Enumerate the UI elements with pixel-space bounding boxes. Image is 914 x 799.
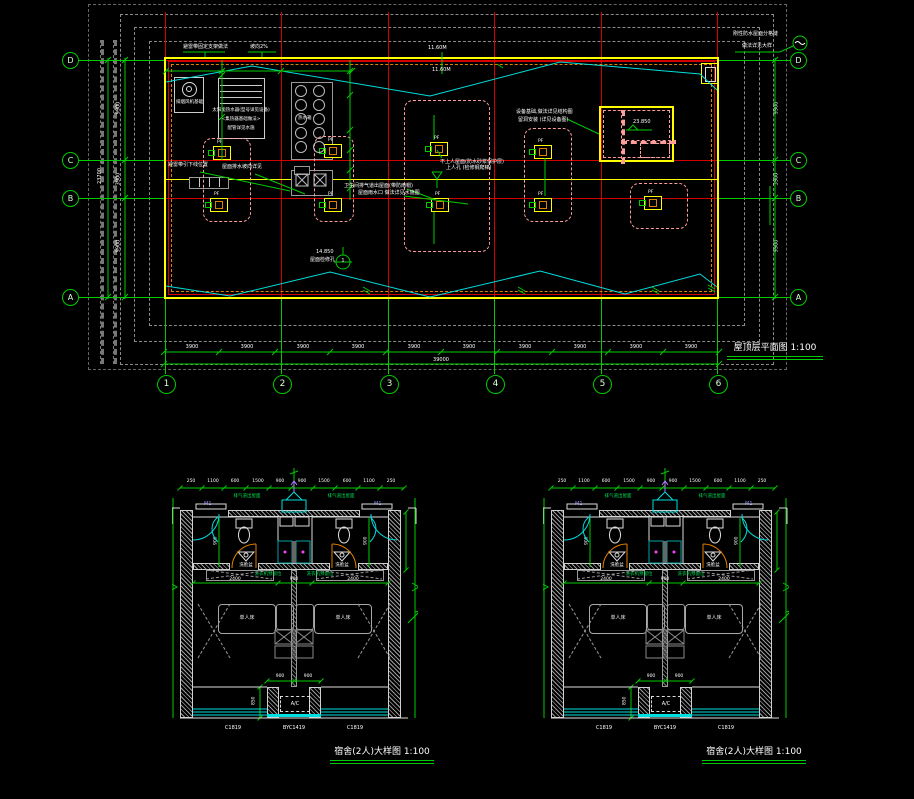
note-belt-support: 避雷带固定支架做法 [183, 44, 228, 50]
note-roof-2: 上人孔 (检修钢爬梯) [446, 165, 492, 171]
note-equip-2: 留洞安装 (详见设备图) [518, 117, 569, 123]
dorm-unit: 单人床 单人床 A/C M1 M1 排气道出屋面 排气道出屋面 洗脸盆 洗脸盆 … [543, 468, 789, 736]
note-joint-2: 做法详见大样 [742, 43, 772, 49]
unit-shower-stalls [278, 541, 310, 563]
dorm-unit-detail-left: 单人床 单人床 A/C M1 M1 排气道出屋面 排气道出屋面 洗脸盆 洗脸盆 … [172, 468, 418, 736]
belt-height-2: 11.60M [432, 67, 451, 73]
unit-walls-lines [172, 504, 416, 718]
note-slope: 坡向2% [250, 44, 268, 50]
unit-dims [172, 468, 418, 721]
note-drain-dir: 屋面排水坡向详见 [222, 164, 262, 170]
note-rain: 屋面雨水口 做法详见水施图 [358, 190, 420, 196]
detail-title-left: 宿舍(2人)大样图 1:100 [330, 744, 434, 764]
joint-detail-symbol [793, 36, 807, 50]
belt-height-1: 11.60M [428, 45, 447, 51]
unit-wardrobe-x [646, 630, 684, 658]
detail-circle-number: 1 [341, 258, 344, 264]
unit-dims [543, 468, 789, 721]
dimension-lines [105, 57, 778, 367]
note-equip-1: 设备基础,做法详见结构图 [516, 109, 573, 115]
unit-walls-lines [543, 504, 787, 718]
note-access-level: 14.850 [316, 249, 334, 255]
note-access: 屋面检修孔 [310, 257, 335, 263]
solar-tank-circles [296, 86, 327, 187]
dorm-unit-detail-right: 单人床 单人床 A/C M1 M1 排气道出屋面 排气道出屋面 洗脸盆 洗脸盆 … [543, 468, 789, 736]
unit-linework [543, 468, 789, 736]
unit-shower-stalls [649, 541, 681, 563]
lightning-belt [166, 62, 717, 297]
roof-plan-title: 屋顶层平面图 1:100 [727, 340, 823, 360]
note-joint-1: 刚性防水屋面分格缝 [733, 31, 778, 37]
detail-title-right: 宿舍(2人)大样图 1:100 [702, 744, 806, 764]
unit-wardrobe-x [275, 630, 313, 658]
note-downlead: 避雷带引下线位置 [168, 162, 208, 168]
unit-linework [172, 468, 418, 736]
note-vent: 卫生间排气道出屋面(带防雨帽) [344, 183, 413, 189]
cad-drawing-canvas: D C B A D C B A 1 2 3 4 5 6 3900 3900 39… [0, 0, 914, 799]
dorm-unit: 单人床 单人床 A/C M1 M1 排气道出屋面 排气道出屋面 洗脸盆 洗脸盆 … [172, 468, 418, 736]
